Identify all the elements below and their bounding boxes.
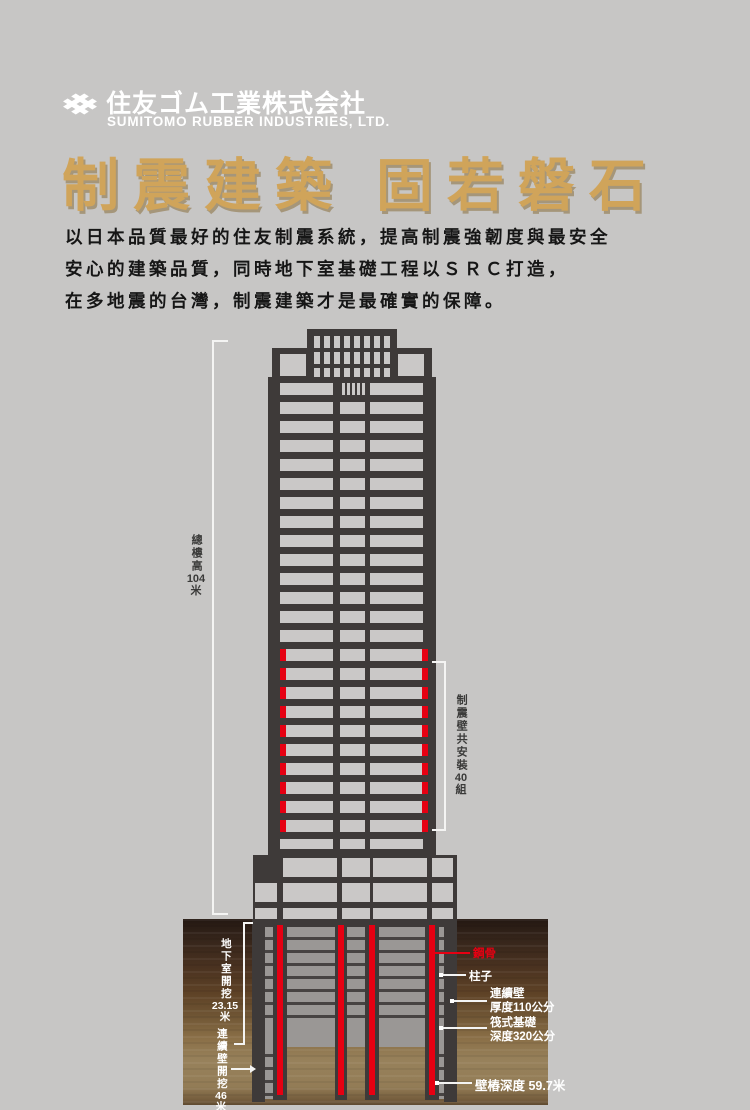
diaphragm-wall-leader-line xyxy=(454,1000,487,1002)
sumitomo-igeta-logo-icon xyxy=(58,84,102,124)
tower-window-band-right xyxy=(370,383,423,849)
wall-excavation-leader-line xyxy=(231,1068,250,1070)
total-height-unit: 米 xyxy=(191,585,202,597)
wall-excavation-arrow-icon xyxy=(250,1065,256,1073)
column-label: 柱子 xyxy=(469,968,492,984)
podium-window xyxy=(373,858,427,877)
raft-depth: 深度320公分 xyxy=(490,1030,555,1044)
tower-window-band-center xyxy=(340,383,365,849)
pile-depth-leader-line xyxy=(439,1082,472,1084)
basement-excavation-bracket xyxy=(243,922,253,1045)
tower xyxy=(268,377,436,855)
pile-depth-label: 壁樁深度 59.7米 xyxy=(475,1075,565,1094)
damper-count-bracket xyxy=(432,661,446,831)
podium-window xyxy=(432,858,453,877)
steel-leader-line xyxy=(434,952,470,954)
total-height-value: 104 xyxy=(187,573,205,585)
total-height-text: 總樓高 xyxy=(190,534,202,573)
intro-line-2: 安心的建築品質，同時地下室基礎工程以ＳＲＣ打造， xyxy=(65,253,611,285)
podium xyxy=(253,855,457,920)
steel-pile xyxy=(429,925,435,1095)
diaphragm-wall-name: 連續壁 xyxy=(490,987,555,1001)
podium-window xyxy=(373,883,427,902)
podium-window xyxy=(283,858,337,877)
tower-window-band-left xyxy=(280,383,333,849)
main-title: 制震建築 固若磐石 xyxy=(62,140,660,222)
steel-pile xyxy=(369,925,375,1095)
raft-leader-line xyxy=(443,1027,487,1029)
tower-top-mullions xyxy=(340,383,365,395)
wall-excavation-text: 連續壁開挖 xyxy=(215,1028,227,1091)
damper-count-unit: 組 xyxy=(456,784,467,796)
intro-line-1: 以日本品質最好的住友制震系統，提高制震強韌度與最安全 xyxy=(65,221,611,253)
podium-window xyxy=(255,883,277,902)
ground-slab xyxy=(265,919,444,927)
damper-count-value: 40 xyxy=(455,772,467,784)
diaphragm-wall-label: 連續壁 厚度110公分 xyxy=(490,987,555,1015)
building-crown-top xyxy=(307,329,397,380)
intro-line-3: 在多地震的台灣，制震建築才是最確實的保障。 xyxy=(65,285,611,317)
steel-label: 鋼骨 xyxy=(473,945,496,961)
basement-excavation-tick xyxy=(234,1043,243,1045)
damper-strip-left xyxy=(280,649,286,832)
steel-pile xyxy=(338,925,344,1095)
raft-name: 筏式基礎 xyxy=(490,1016,555,1030)
column-leader-line xyxy=(443,974,466,976)
diaphragm-wall-right xyxy=(444,919,457,1102)
crown-window-right xyxy=(398,354,424,376)
crown-window-left xyxy=(280,354,306,376)
total-height-bracket xyxy=(212,340,228,915)
podium-window xyxy=(342,883,370,902)
raft-label: 筏式基礎 深度320公分 xyxy=(490,1016,555,1044)
podium-window xyxy=(342,858,370,877)
basement-excavation-label: 地下室開挖 23.15 米 xyxy=(212,938,238,1024)
steel-pile xyxy=(277,925,283,1095)
basement-floors xyxy=(265,927,444,1018)
diaphragm-wall-left xyxy=(252,919,265,1102)
basement-excavation-text: 地下室開挖 xyxy=(219,938,231,1001)
poster: 住友ゴム工業株式会社 SUMITOMO RUBBER INDUSTRIES, L… xyxy=(0,0,750,1110)
podium-window xyxy=(283,883,337,902)
raft-foundation xyxy=(265,1018,444,1047)
wall-excavation-unit: 米 xyxy=(216,1102,227,1110)
diaphragm-wall-thickness: 厚度110公分 xyxy=(490,1001,555,1015)
damper-strip-right xyxy=(422,649,428,832)
company-name-en: SUMITOMO RUBBER INDUSTRIES, LTD. xyxy=(107,114,390,129)
total-height-label: 總樓高 104 米 xyxy=(184,534,208,598)
podium-window xyxy=(432,883,453,902)
damper-count-label: 制震壁共安裝 40 組 xyxy=(449,694,473,797)
basement-excavation-unit: 米 xyxy=(220,1012,231,1024)
damper-count-text: 制震壁共安裝 xyxy=(455,694,467,772)
intro-paragraph: 以日本品質最好的住友制震系統，提高制震強韌度與最安全 安心的建築品質，同時地下室… xyxy=(65,221,611,317)
